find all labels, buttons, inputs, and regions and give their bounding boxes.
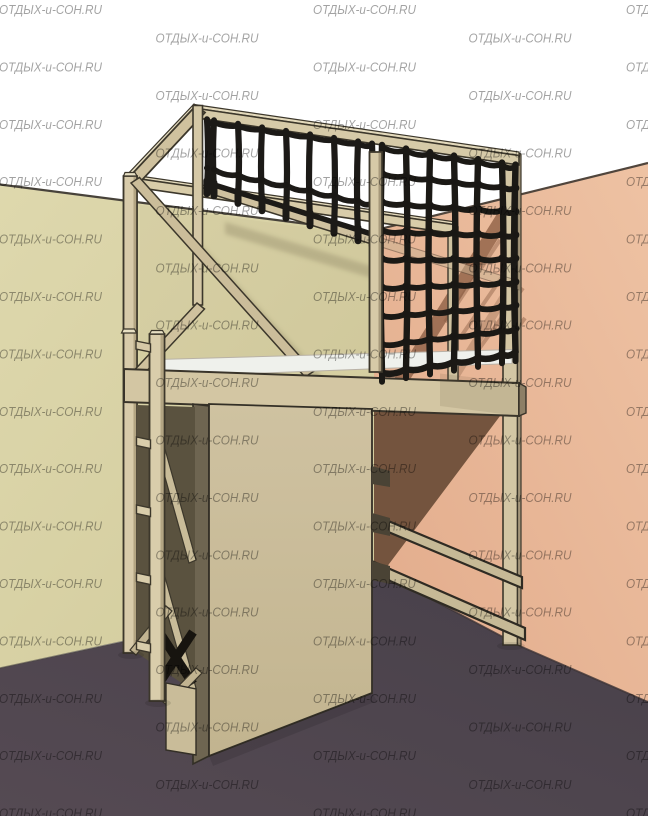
svg-text:ОТДЫХ-и-СОН.RU: ОТДЫХ-и-СОН.RU <box>626 806 648 816</box>
svg-text:ОТДЫХ-и-СОН.RU: ОТДЫХ-и-СОН.RU <box>469 720 573 735</box>
svg-text:ОТДЫХ-и-СОН.RU: ОТДЫХ-и-СОН.RU <box>156 777 260 792</box>
svg-text:ОТДЫХ-и-СОН.RU: ОТДЫХ-и-СОН.RU <box>469 605 573 620</box>
svg-text:ОТДЫХ-и-СОН.RU: ОТДЫХ-и-СОН.RU <box>313 232 417 247</box>
svg-text:ОТДЫХ-и-СОН.RU: ОТДЫХ-и-СОН.RU <box>469 31 573 46</box>
svg-text:ОТДЫХ-и-СОН.RU: ОТДЫХ-и-СОН.RU <box>0 232 103 247</box>
svg-text:ОТДЫХ-и-СОН.RU: ОТДЫХ-и-СОН.RU <box>469 777 573 792</box>
svg-text:ОТДЫХ-и-СОН.RU: ОТДЫХ-и-СОН.RU <box>469 662 573 677</box>
svg-text:ОТДЫХ-и-СОН.RU: ОТДЫХ-и-СОН.RU <box>0 174 103 189</box>
svg-text:ОТДЫХ-и-СОН.RU: ОТДЫХ-и-СОН.RU <box>0 59 103 74</box>
svg-text:ОТДЫХ-и-СОН.RU: ОТДЫХ-и-СОН.RU <box>313 576 417 591</box>
svg-text:ОТДЫХ-и-СОН.RU: ОТДЫХ-и-СОН.RU <box>0 346 103 361</box>
svg-text:ОТДЫХ-и-СОН.RU: ОТДЫХ-и-СОН.RU <box>626 232 648 247</box>
svg-text:ОТДЫХ-и-СОН.RU: ОТДЫХ-и-СОН.RU <box>0 461 103 476</box>
svg-text:ОТДЫХ-и-СОН.RU: ОТДЫХ-и-СОН.RU <box>626 174 648 189</box>
svg-text:ОТДЫХ-и-СОН.RU: ОТДЫХ-и-СОН.RU <box>626 346 648 361</box>
svg-text:ОТДЫХ-и-СОН.RU: ОТДЫХ-и-СОН.RU <box>313 117 417 132</box>
svg-text:ОТДЫХ-и-СОН.RU: ОТДЫХ-и-СОН.RU <box>156 605 260 620</box>
svg-text:ОТДЫХ-и-СОН.RU: ОТДЫХ-и-СОН.RU <box>156 662 260 677</box>
svg-text:ОТДЫХ-и-СОН.RU: ОТДЫХ-и-СОН.RU <box>626 748 648 763</box>
svg-text:ОТДЫХ-и-СОН.RU: ОТДЫХ-и-СОН.RU <box>0 633 103 648</box>
svg-text:ОТДЫХ-и-СОН.RU: ОТДЫХ-и-СОН.RU <box>0 117 103 132</box>
svg-text:ОТДЫХ-и-СОН.RU: ОТДЫХ-и-СОН.RU <box>0 576 103 591</box>
svg-text:ОТДЫХ-и-СОН.RU: ОТДЫХ-и-СОН.RU <box>156 88 260 103</box>
svg-text:ОТДЫХ-и-СОН.RU: ОТДЫХ-и-СОН.RU <box>156 547 260 562</box>
svg-text:ОТДЫХ-и-СОН.RU: ОТДЫХ-и-СОН.RU <box>156 31 260 46</box>
svg-text:ОТДЫХ-и-СОН.RU: ОТДЫХ-и-СОН.RU <box>469 318 573 333</box>
svg-text:ОТДЫХ-и-СОН.RU: ОТДЫХ-и-СОН.RU <box>313 289 417 304</box>
svg-text:ОТДЫХ-и-СОН.RU: ОТДЫХ-и-СОН.RU <box>313 59 417 74</box>
svg-text:ОТДЫХ-и-СОН.RU: ОТДЫХ-и-СОН.RU <box>626 117 648 132</box>
svg-text:ОТДЫХ-и-СОН.RU: ОТДЫХ-и-СОН.RU <box>0 691 103 706</box>
svg-text:ОТДЫХ-и-СОН.RU: ОТДЫХ-и-СОН.RU <box>156 260 260 275</box>
svg-text:ОТДЫХ-и-СОН.RU: ОТДЫХ-и-СОН.RU <box>313 519 417 534</box>
svg-text:ОТДЫХ-и-СОН.RU: ОТДЫХ-и-СОН.RU <box>313 748 417 763</box>
svg-text:ОТДЫХ-и-СОН.RU: ОТДЫХ-и-СОН.RU <box>469 146 573 161</box>
svg-text:ОТДЫХ-и-СОН.RU: ОТДЫХ-и-СОН.RU <box>313 404 417 419</box>
svg-text:ОТДЫХ-и-СОН.RU: ОТДЫХ-и-СОН.RU <box>156 203 260 218</box>
svg-text:ОТДЫХ-и-СОН.RU: ОТДЫХ-и-СОН.RU <box>313 806 417 816</box>
svg-text:ОТДЫХ-и-СОН.RU: ОТДЫХ-и-СОН.RU <box>156 318 260 333</box>
svg-text:ОТДЫХ-и-СОН.RU: ОТДЫХ-и-СОН.RU <box>626 289 648 304</box>
svg-text:ОТДЫХ-и-СОН.RU: ОТДЫХ-и-СОН.RU <box>626 576 648 591</box>
svg-text:ОТДЫХ-и-СОН.RU: ОТДЫХ-и-СОН.RU <box>0 519 103 534</box>
svg-text:ОТДЫХ-и-СОН.RU: ОТДЫХ-и-СОН.RU <box>0 748 103 763</box>
svg-text:ОТДЫХ-и-СОН.RU: ОТДЫХ-и-СОН.RU <box>469 433 573 448</box>
svg-text:ОТДЫХ-и-СОН.RU: ОТДЫХ-и-СОН.RU <box>626 633 648 648</box>
svg-text:ОТДЫХ-и-СОН.RU: ОТДЫХ-и-СОН.RU <box>0 404 103 419</box>
svg-text:ОТДЫХ-и-СОН.RU: ОТДЫХ-и-СОН.RU <box>0 289 103 304</box>
svg-text:ОТДЫХ-и-СОН.RU: ОТДЫХ-и-СОН.RU <box>626 461 648 476</box>
svg-text:ОТДЫХ-и-СОН.RU: ОТДЫХ-и-СОН.RU <box>626 404 648 419</box>
svg-text:ОТДЫХ-и-СОН.RU: ОТДЫХ-и-СОН.RU <box>469 260 573 275</box>
svg-text:ОТДЫХ-и-СОН.RU: ОТДЫХ-и-СОН.RU <box>469 203 573 218</box>
svg-text:ОТДЫХ-и-СОН.RU: ОТДЫХ-и-СОН.RU <box>469 547 573 562</box>
svg-text:ОТДЫХ-и-СОН.RU: ОТДЫХ-и-СОН.RU <box>626 691 648 706</box>
svg-text:ОТДЫХ-и-СОН.RU: ОТДЫХ-и-СОН.RU <box>156 375 260 390</box>
svg-text:ОТДЫХ-и-СОН.RU: ОТДЫХ-и-СОН.RU <box>626 59 648 74</box>
svg-text:ОТДЫХ-и-СОН.RU: ОТДЫХ-и-СОН.RU <box>0 806 103 816</box>
svg-text:ОТДЫХ-и-СОН.RU: ОТДЫХ-и-СОН.RU <box>156 490 260 505</box>
svg-text:ОТДЫХ-и-СОН.RU: ОТДЫХ-и-СОН.RU <box>313 2 417 17</box>
svg-text:ОТДЫХ-и-СОН.RU: ОТДЫХ-и-СОН.RU <box>626 519 648 534</box>
svg-text:ОТДЫХ-и-СОН.RU: ОТДЫХ-и-СОН.RU <box>313 633 417 648</box>
svg-text:ОТДЫХ-и-СОН.RU: ОТДЫХ-и-СОН.RU <box>0 2 103 17</box>
svg-text:ОТДЫХ-и-СОН.RU: ОТДЫХ-и-СОН.RU <box>469 88 573 103</box>
svg-text:ОТДЫХ-и-СОН.RU: ОТДЫХ-и-СОН.RU <box>313 461 417 476</box>
svg-text:ОТДЫХ-и-СОН.RU: ОТДЫХ-и-СОН.RU <box>313 174 417 189</box>
svg-text:ОТДЫХ-и-СОН.RU: ОТДЫХ-и-СОН.RU <box>156 720 260 735</box>
svg-text:ОТДЫХ-и-СОН.RU: ОТДЫХ-и-СОН.RU <box>156 433 260 448</box>
svg-text:ОТДЫХ-и-СОН.RU: ОТДЫХ-и-СОН.RU <box>469 490 573 505</box>
svg-text:ОТДЫХ-и-СОН.RU: ОТДЫХ-и-СОН.RU <box>469 375 573 390</box>
svg-text:ОТДЫХ-и-СОН.RU: ОТДЫХ-и-СОН.RU <box>626 2 648 17</box>
svg-text:ОТДЫХ-и-СОН.RU: ОТДЫХ-и-СОН.RU <box>313 346 417 361</box>
svg-text:ОТДЫХ-и-СОН.RU: ОТДЫХ-и-СОН.RU <box>156 146 260 161</box>
svg-text:ОТДЫХ-и-СОН.RU: ОТДЫХ-и-СОН.RU <box>313 691 417 706</box>
